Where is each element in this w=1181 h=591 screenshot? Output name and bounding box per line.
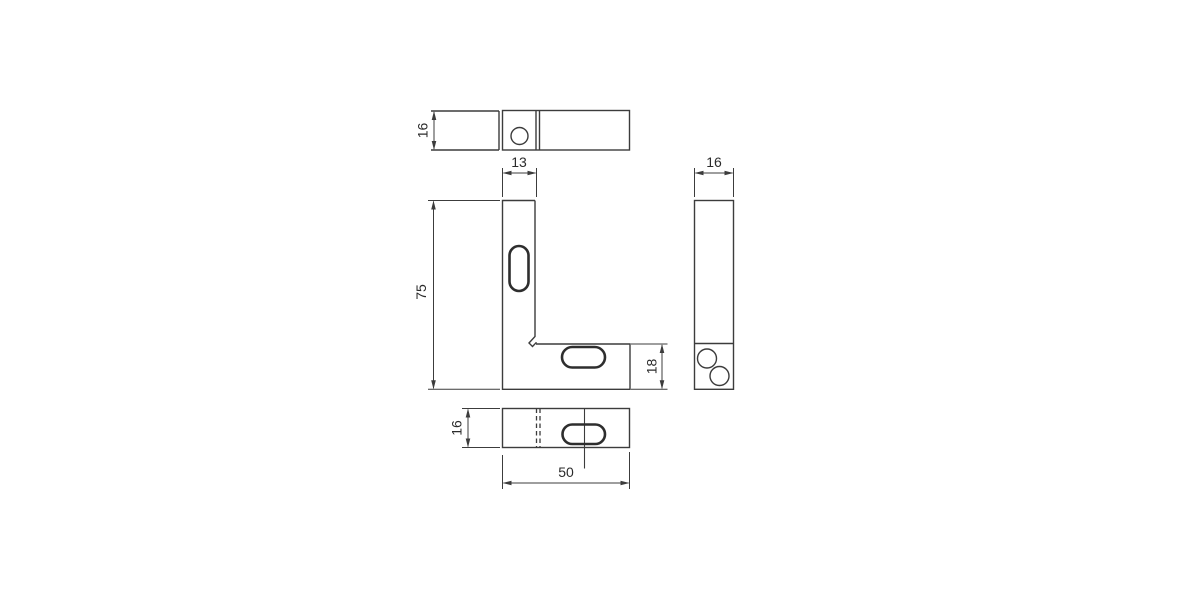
hole-circle-lower bbox=[710, 367, 729, 386]
hidden-edge-line-pair bbox=[537, 409, 541, 448]
arrowhead-down bbox=[431, 380, 436, 389]
inner-edge-with-corner-notch bbox=[529, 201, 537, 347]
arrowhead-right bbox=[621, 481, 630, 486]
dimension-label: 16 bbox=[706, 154, 722, 170]
dimension-label: 75 bbox=[413, 284, 429, 300]
arrowhead-up bbox=[466, 409, 471, 418]
side-view bbox=[695, 201, 734, 390]
edge-line-pair bbox=[536, 111, 540, 151]
arrowhead-down bbox=[466, 439, 471, 448]
side-view-body bbox=[695, 201, 734, 390]
arrowhead-left bbox=[503, 171, 512, 176]
arrowhead-up bbox=[432, 111, 437, 120]
top-view bbox=[431, 111, 630, 151]
dimension-side-width: 16 bbox=[695, 154, 734, 197]
dimension-label: 50 bbox=[558, 464, 574, 480]
arrowhead-up bbox=[660, 344, 665, 353]
dimension-label: 16 bbox=[449, 420, 465, 436]
extension-lines bbox=[428, 201, 500, 390]
dimension-leg-width: 13 bbox=[503, 154, 537, 197]
arrowhead-up bbox=[431, 201, 436, 210]
dimension-base-height: 18 bbox=[631, 344, 668, 389]
hole-circle bbox=[511, 128, 528, 145]
dimension-label: 13 bbox=[511, 154, 527, 170]
horizontal-slot bbox=[562, 347, 605, 368]
drawing-canvas: 16 13 75 18 bbox=[0, 0, 1181, 591]
orthographic-drawing: 16 13 75 18 bbox=[0, 0, 1181, 591]
front-view bbox=[503, 201, 631, 390]
arrowhead-left bbox=[503, 481, 512, 486]
front-view-outline bbox=[503, 201, 631, 390]
bottom-slot bbox=[563, 425, 606, 445]
dimension-bottom-depth: 16 bbox=[449, 409, 501, 448]
top-view-left-segment bbox=[431, 111, 499, 150]
arrowhead-left bbox=[695, 171, 704, 176]
vertical-slot bbox=[510, 246, 529, 291]
arrowhead-right bbox=[528, 171, 537, 176]
bottom-view bbox=[503, 409, 630, 469]
dimension-top-depth: 16 bbox=[415, 111, 437, 150]
dimension-label: 16 bbox=[415, 123, 431, 139]
dimension-label: 18 bbox=[644, 359, 660, 375]
arrowhead-right bbox=[725, 171, 734, 176]
arrowhead-down bbox=[432, 141, 437, 150]
arrowhead-down bbox=[660, 380, 665, 389]
dimension-overall-length: 50 bbox=[503, 452, 630, 489]
dimension-overall-height: 75 bbox=[413, 201, 500, 390]
hole-circle-upper bbox=[698, 349, 717, 368]
